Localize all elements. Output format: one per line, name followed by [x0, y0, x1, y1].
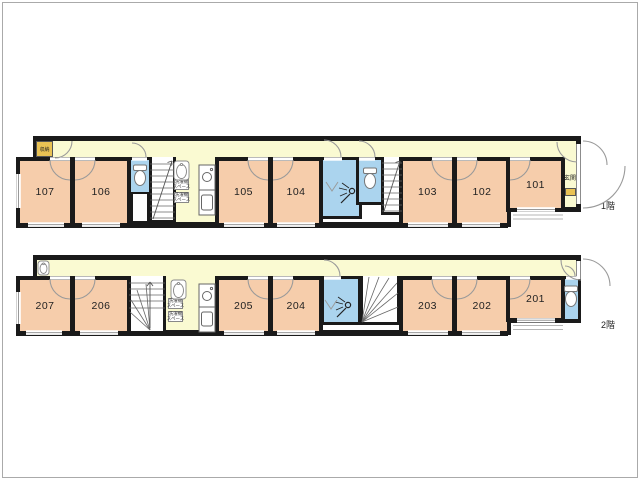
room-107: 107 [16, 157, 74, 227]
room-205: 205 [215, 276, 272, 335]
image-border [2, 2, 638, 478]
storage-cabinet-1f: 収納 [36, 141, 53, 157]
room-103: 103 [399, 157, 456, 227]
room-105: 105 [215, 157, 272, 227]
laundry-space-1f-a: 洗濯機スペース [174, 179, 189, 190]
room-206: 206 [71, 276, 131, 335]
toilet-room-b-1f [356, 157, 384, 205]
wall-top-2f [33, 255, 581, 260]
hallway-2f [33, 258, 576, 278]
staircase-left-2f [128, 276, 166, 334]
laundry-space-2f-a: 洗濯機スペース [168, 298, 183, 309]
entrance-label: 玄関 [558, 173, 582, 182]
room-101: 101 [506, 157, 565, 212]
shower-room-2f [321, 276, 361, 325]
laundry-space-2f-b: 洗濯機スペース [168, 311, 183, 322]
room-204: 204 [269, 276, 323, 335]
room-203: 203 [399, 276, 456, 335]
floorplan-canvas: 107 106 105 104 103 102 101 収納 洗濯機スペース 洗… [0, 0, 640, 480]
room-201: 201 [506, 276, 565, 322]
staircase-right-2f [360, 276, 400, 325]
wall-top-1f [33, 136, 581, 141]
room-104: 104 [269, 157, 323, 227]
room-106: 106 [71, 157, 131, 227]
closet-under-toilet-1f [131, 194, 149, 223]
room-102: 102 [453, 157, 511, 227]
shoe-cabinet-1f [565, 188, 576, 196]
hallway-1f [33, 139, 576, 159]
laundry-space-1f-b: 洗濯機スペース [174, 192, 189, 203]
room-202: 202 [453, 276, 511, 335]
staircase-left-1f [149, 157, 176, 223]
room-207: 207 [16, 276, 74, 335]
floor1-label: 1階 [601, 199, 633, 212]
floor2-label: 2階 [601, 318, 633, 331]
